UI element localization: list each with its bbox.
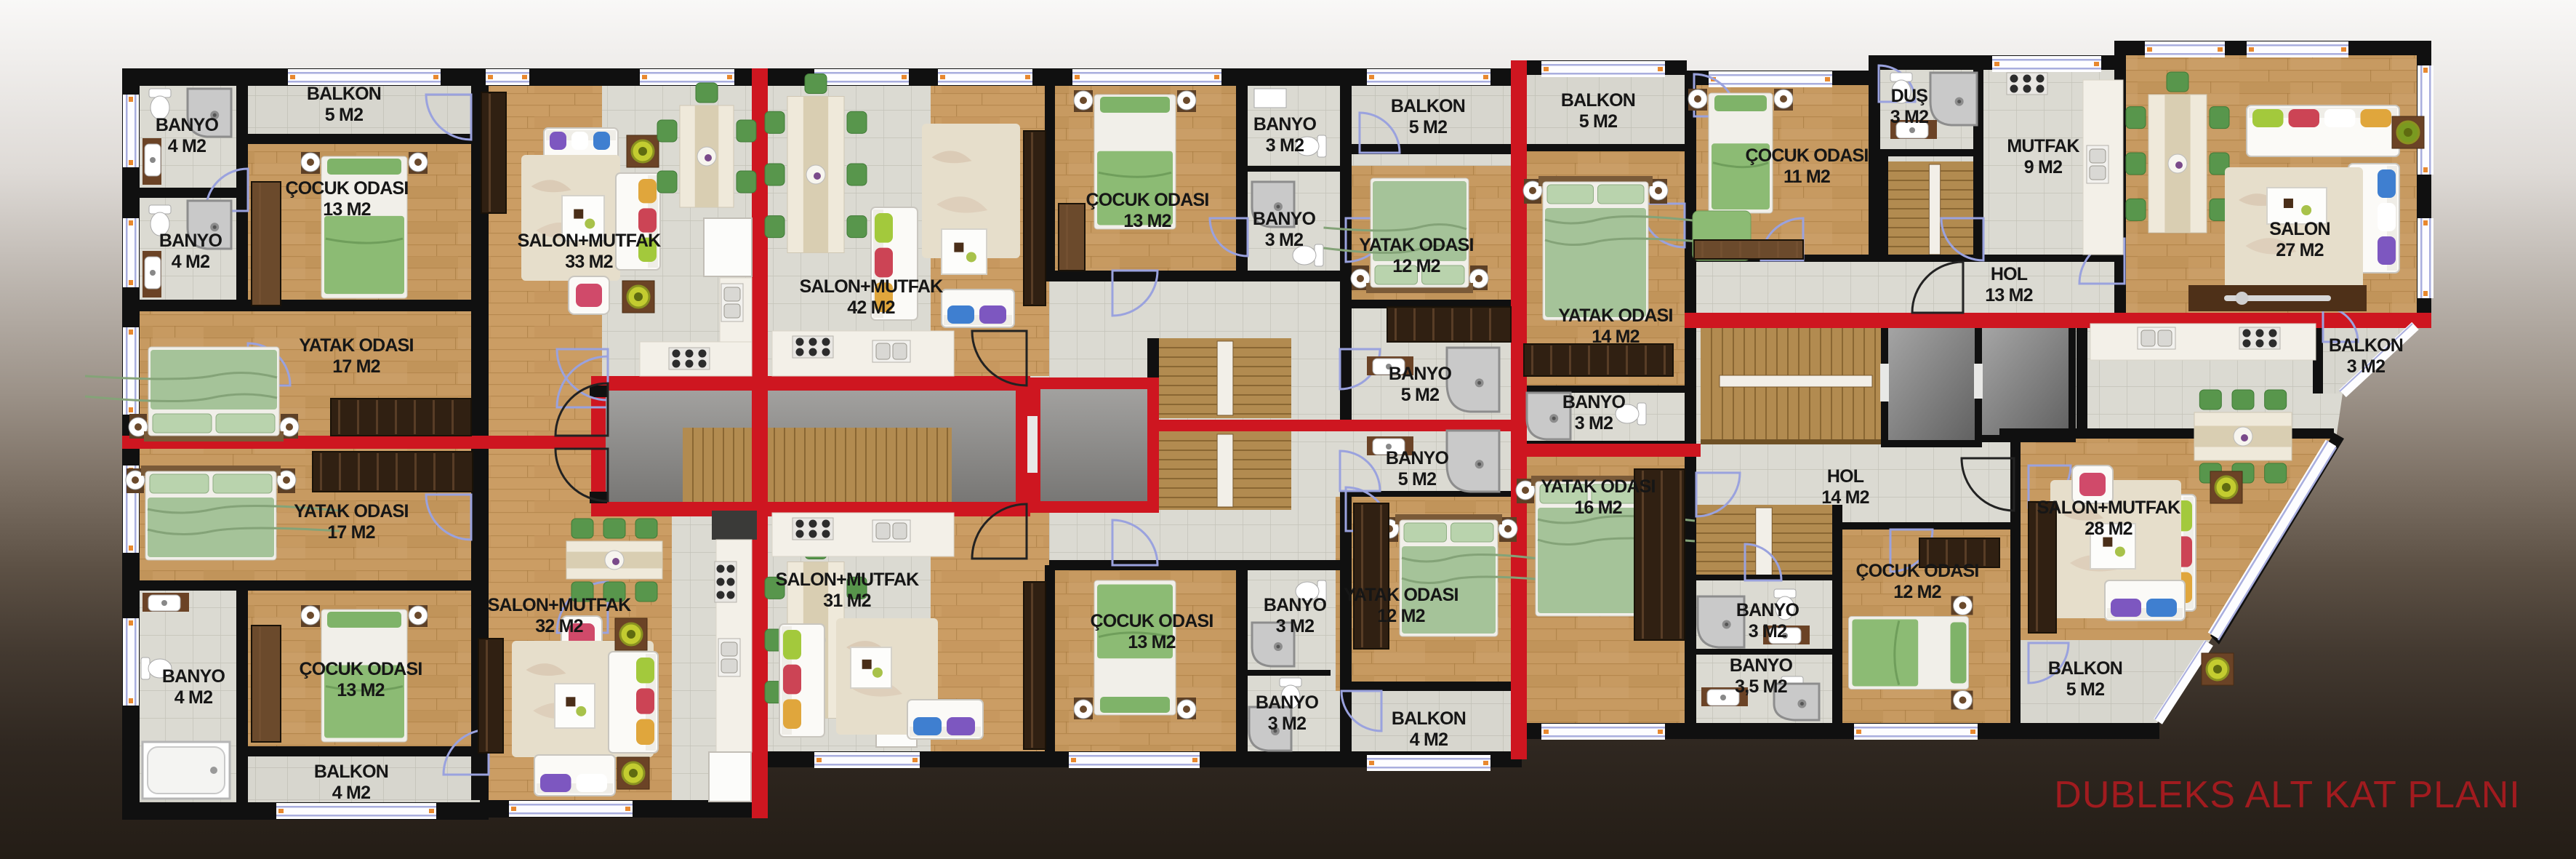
svg-text:SALON+MUTFAK: SALON+MUTFAK <box>2037 498 2180 518</box>
svg-text:5 M2: 5 M2 <box>1398 469 1436 490</box>
svg-text:BALKON: BALKON <box>1392 708 1466 729</box>
svg-text:13 M2: 13 M2 <box>1985 285 2032 305</box>
svg-text:BANYO: BANYO <box>1730 655 1793 676</box>
svg-text:BANYO: BANYO <box>1736 600 1799 620</box>
svg-text:BALKON: BALKON <box>2329 335 2403 356</box>
svg-text:3,5 M2: 3,5 M2 <box>1735 676 1787 697</box>
svg-text:3 M2: 3 M2 <box>1268 714 1306 734</box>
svg-text:12 M2: 12 M2 <box>1893 582 1941 602</box>
svg-text:ÇOCUK ODASI: ÇOCUK ODASI <box>1086 190 1209 210</box>
svg-text:BANYO: BANYO <box>162 666 225 687</box>
svg-text:BALKON: BALKON <box>2048 658 2122 679</box>
svg-text:42 M2: 42 M2 <box>847 297 894 318</box>
svg-text:BALKON: BALKON <box>1391 96 1465 116</box>
svg-text:BANYO: BANYO <box>1253 209 1316 229</box>
svg-text:16 M2: 16 M2 <box>1574 498 1621 518</box>
svg-text:13 M2: 13 M2 <box>323 199 370 220</box>
svg-text:4 M2: 4 M2 <box>168 136 206 156</box>
svg-text:28 M2: 28 M2 <box>2085 519 2132 539</box>
svg-text:YATAK ODASI: YATAK ODASI <box>299 335 413 356</box>
svg-text:4 M2: 4 M2 <box>174 687 212 708</box>
svg-text:SALON+MUTFAK: SALON+MUTFAK <box>800 276 943 297</box>
svg-text:ÇOCUK ODASI: ÇOCUK ODASI <box>1856 561 1979 581</box>
svg-text:SALON+MUTFAK: SALON+MUTFAK <box>776 570 919 590</box>
svg-text:BANYO: BANYO <box>1264 595 1327 615</box>
svg-text:BALKON: BALKON <box>307 84 381 104</box>
svg-text:3 M2: 3 M2 <box>1575 413 1613 434</box>
svg-text:14 M2: 14 M2 <box>1821 487 1869 508</box>
svg-text:3 M2: 3 M2 <box>1265 230 1303 250</box>
svg-text:YATAK ODASI: YATAK ODASI <box>1344 585 1458 605</box>
svg-text:YATAK ODASI: YATAK ODASI <box>1558 305 1672 326</box>
svg-text:MUTFAK: MUTFAK <box>2007 136 2079 156</box>
svg-text:5 M2: 5 M2 <box>2066 679 2104 700</box>
svg-text:3 M2: 3 M2 <box>2347 356 2385 377</box>
svg-text:BANYO: BANYO <box>1389 364 1452 384</box>
svg-text:DUBLEKS ALT KAT PLANI: DUBLEKS ALT KAT PLANI <box>2054 774 2520 816</box>
svg-text:9 M2: 9 M2 <box>2024 157 2062 177</box>
svg-text:SALON+MUTFAK: SALON+MUTFAK <box>488 595 631 615</box>
svg-text:YATAK ODASI: YATAK ODASI <box>294 501 408 522</box>
svg-text:5 M2: 5 M2 <box>1401 385 1439 405</box>
svg-text:13 M2: 13 M2 <box>1128 632 1175 652</box>
svg-text:BANYO: BANYO <box>1253 114 1317 135</box>
svg-text:ÇOCUK ODASI: ÇOCUK ODASI <box>1091 611 1213 631</box>
svg-text:11 M2: 11 M2 <box>1783 167 1830 187</box>
svg-text:BANYO: BANYO <box>1386 448 1449 468</box>
svg-text:27 M2: 27 M2 <box>2276 240 2323 260</box>
svg-text:12 M2: 12 M2 <box>1377 606 1424 626</box>
svg-text:BANYO: BANYO <box>1562 392 1626 412</box>
svg-text:4 M2: 4 M2 <box>332 783 370 803</box>
svg-text:BANYO: BANYO <box>159 231 222 251</box>
svg-text:14 M2: 14 M2 <box>1592 327 1639 347</box>
svg-text:3 M2: 3 M2 <box>1890 107 1928 127</box>
svg-text:SALON+MUTFAK: SALON+MUTFAK <box>518 231 661 251</box>
svg-text:DUŞ: DUŞ <box>1891 86 1928 106</box>
svg-text:5 M2: 5 M2 <box>1409 117 1447 137</box>
svg-text:ÇOCUK ODASI: ÇOCUK ODASI <box>286 178 409 199</box>
svg-text:YATAK ODASI: YATAK ODASI <box>1359 235 1473 255</box>
svg-text:SALON: SALON <box>2269 219 2330 239</box>
svg-text:17 M2: 17 M2 <box>327 522 374 543</box>
svg-text:BALKON: BALKON <box>314 762 388 782</box>
svg-text:5 M2: 5 M2 <box>325 105 363 125</box>
svg-text:4 M2: 4 M2 <box>1410 730 1448 750</box>
svg-text:33 M2: 33 M2 <box>565 252 612 272</box>
svg-text:5 M2: 5 M2 <box>1579 111 1617 132</box>
svg-text:3 M2: 3 M2 <box>1749 621 1786 642</box>
svg-text:BALKON: BALKON <box>1561 90 1635 111</box>
svg-text:YATAK ODASI: YATAK ODASI <box>1541 476 1655 497</box>
svg-text:17 M2: 17 M2 <box>332 356 380 377</box>
svg-text:31 M2: 31 M2 <box>823 591 870 611</box>
svg-text:13 M2: 13 M2 <box>1123 211 1171 231</box>
svg-text:13 M2: 13 M2 <box>337 680 384 700</box>
svg-text:4 M2: 4 M2 <box>172 252 209 272</box>
svg-text:3 M2: 3 M2 <box>1276 616 1314 636</box>
svg-text:ÇOCUK ODASI: ÇOCUK ODASI <box>1746 145 1869 166</box>
svg-text:ÇOCUK ODASI: ÇOCUK ODASI <box>300 659 422 679</box>
svg-text:BANYO: BANYO <box>1256 692 1319 713</box>
svg-text:BANYO: BANYO <box>156 115 219 135</box>
svg-text:HOL: HOL <box>1991 264 2028 284</box>
svg-text:3 M2: 3 M2 <box>1266 135 1304 156</box>
svg-text:HOL: HOL <box>1827 466 1864 487</box>
svg-text:12 M2: 12 M2 <box>1392 256 1440 276</box>
svg-text:32 M2: 32 M2 <box>535 616 582 636</box>
